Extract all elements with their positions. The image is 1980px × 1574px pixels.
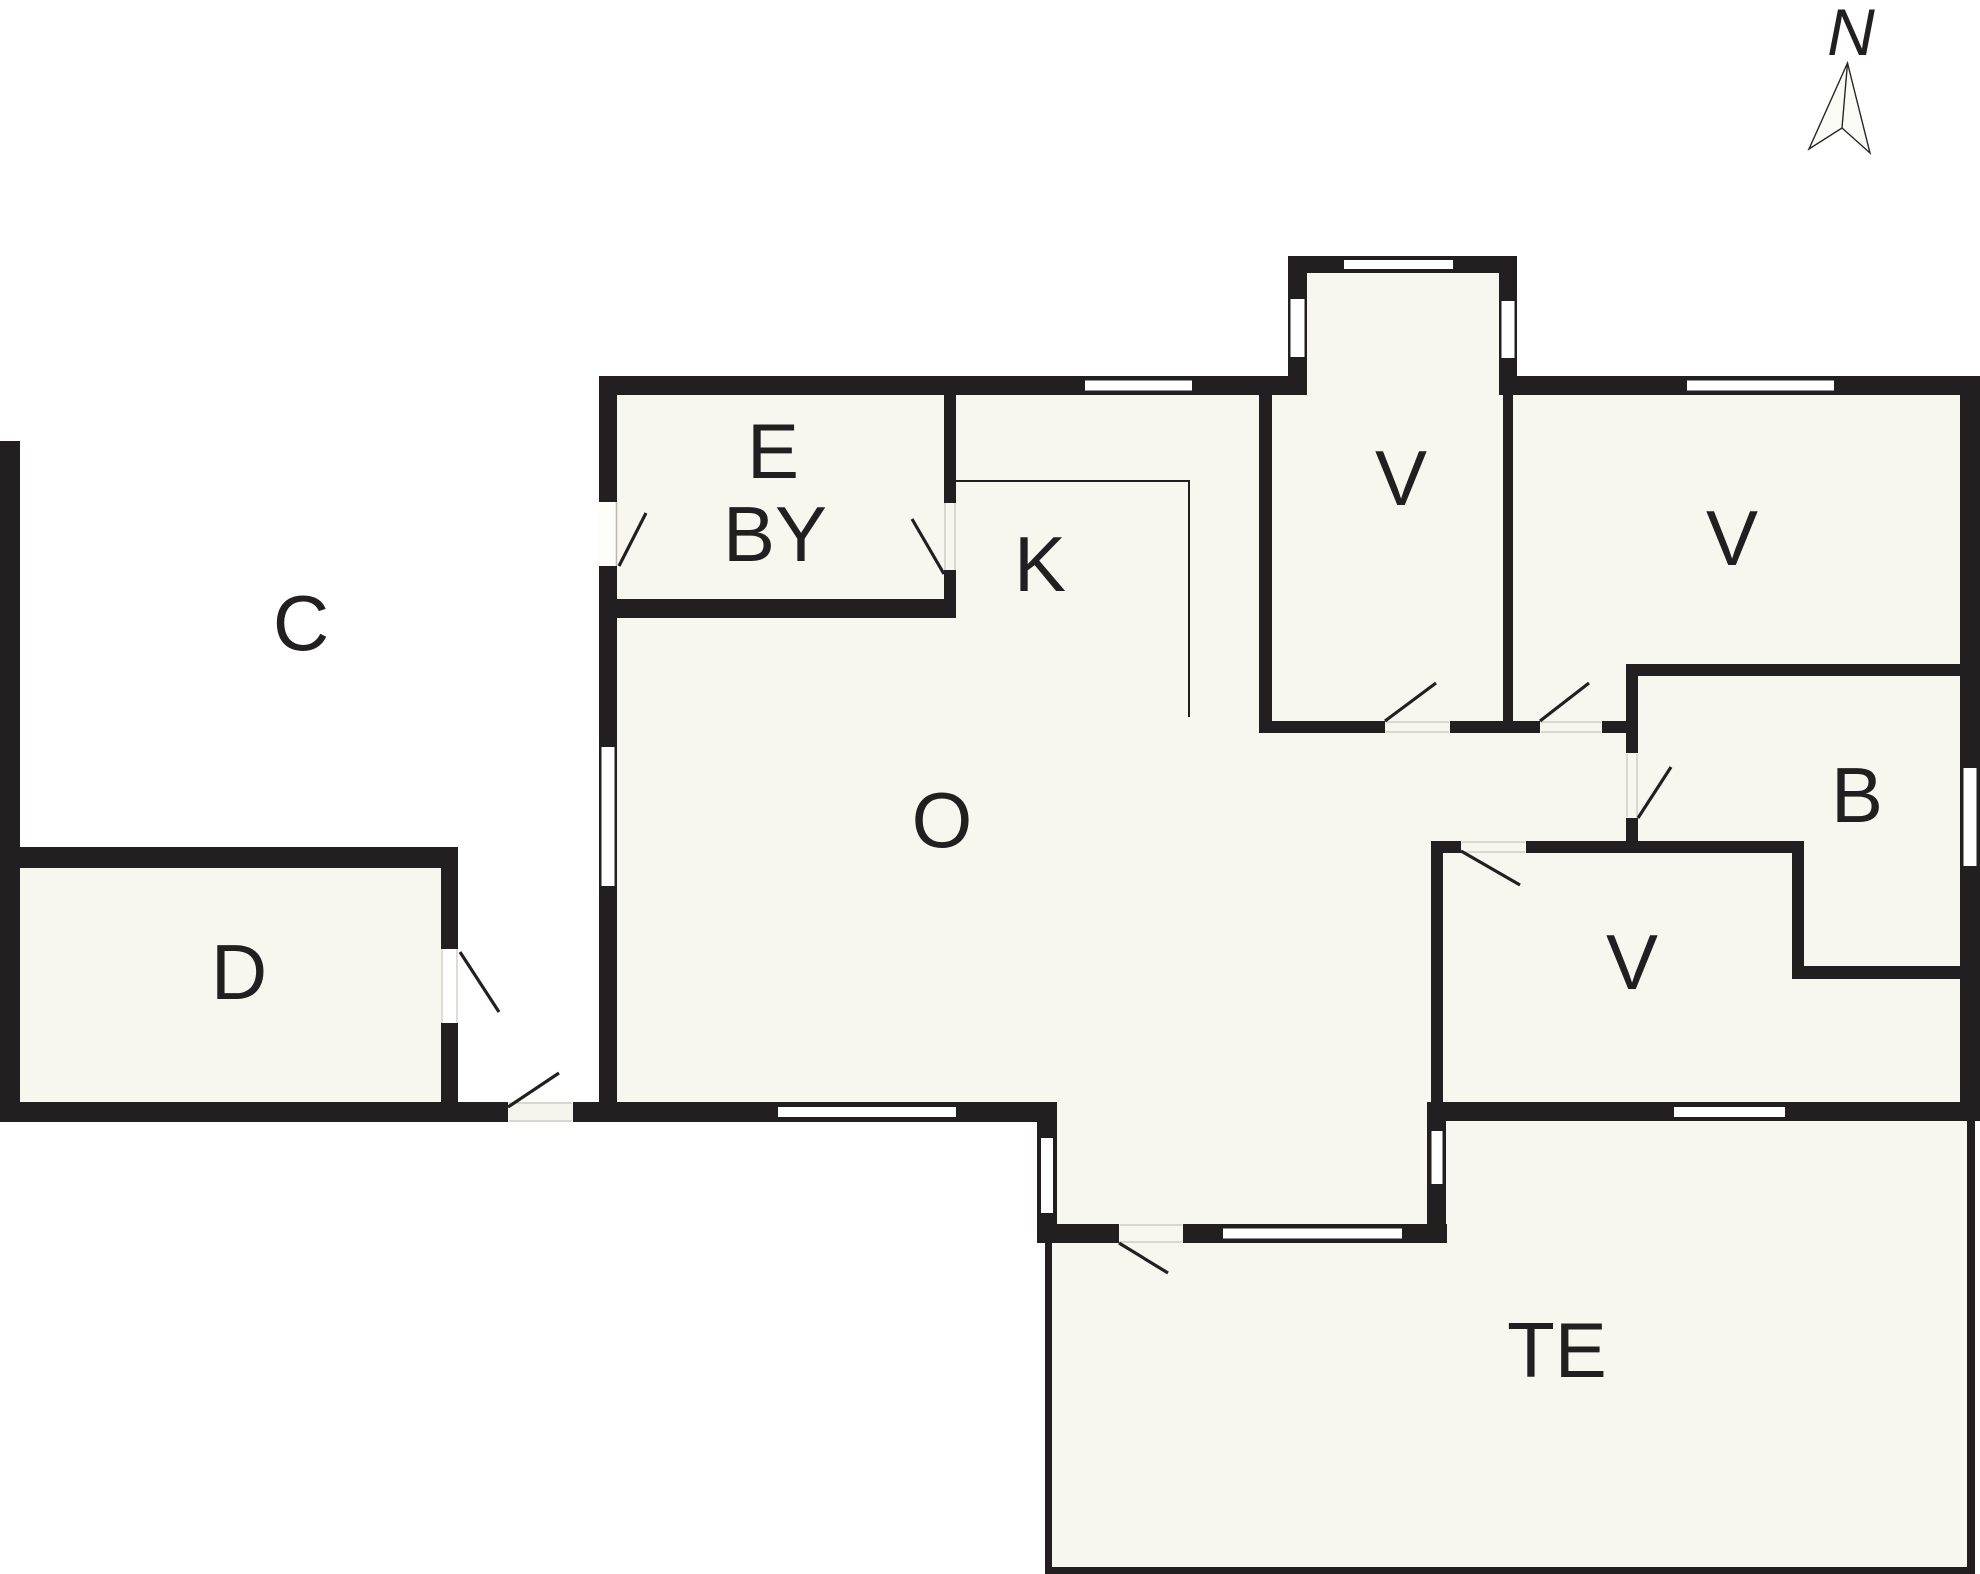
svg-text:V: V xyxy=(1606,918,1658,1006)
svg-text:D: D xyxy=(211,928,267,1016)
svg-text:N: N xyxy=(1827,0,1875,69)
svg-text:BY: BY xyxy=(723,490,827,578)
svg-text:E: E xyxy=(747,407,799,495)
svg-text:B: B xyxy=(1831,751,1883,839)
svg-text:K: K xyxy=(1014,520,1066,608)
svg-text:O: O xyxy=(912,776,973,864)
svg-text:C: C xyxy=(273,579,329,667)
svg-text:V: V xyxy=(1375,434,1427,522)
svg-text:TE: TE xyxy=(1507,1306,1607,1394)
svg-text:V: V xyxy=(1706,494,1758,582)
